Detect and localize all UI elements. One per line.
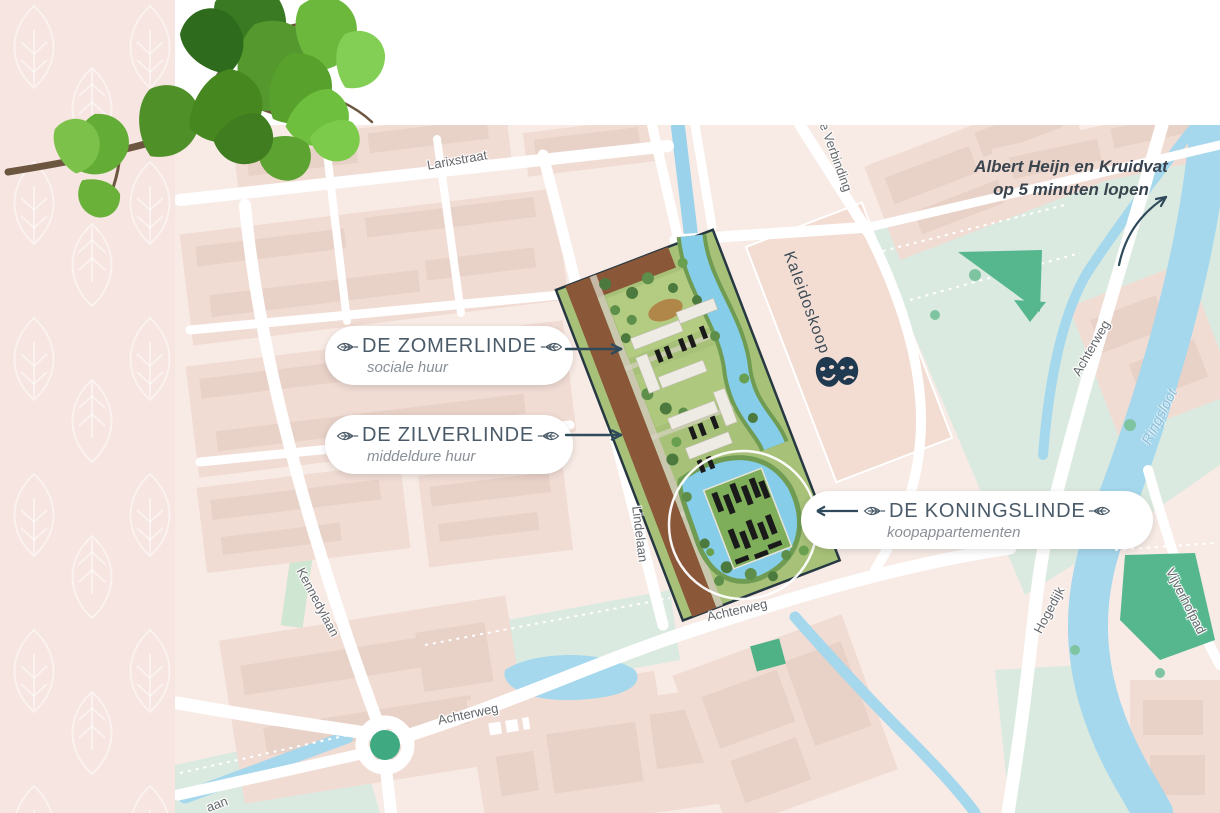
pill-subtitle: middeldure huur (367, 448, 571, 465)
map-graphics (175, 125, 1220, 813)
linden-leaf-icon (335, 336, 359, 358)
label-pill-koningslinde: DE KONINGSLINDE koopappartementen (801, 491, 1153, 549)
linden-leaf-icon (862, 500, 886, 522)
pill-subtitle: sociale huur (367, 359, 571, 376)
note-line-2: op 5 minuten lopen (921, 178, 1220, 201)
linden-leaf-icon (540, 336, 564, 358)
pill-title: DE ZILVERLINDE (362, 424, 534, 447)
label-pill-zilverlinde: DE ZILVERLINDE middeldure huur (325, 415, 573, 474)
linden-leaf-icon (335, 425, 359, 447)
leaf-outline-pattern (0, 0, 175, 813)
walking-distance-note: Albert Heijn en Kruidvat op 5 minuten lo… (921, 155, 1220, 201)
note-line-1: Albert Heijn en Kruidvat (921, 155, 1220, 178)
linden-leaf-icon (537, 425, 561, 447)
pill-title: DE ZOMERLINDE (362, 335, 537, 358)
page: Larixstraat e Verbinding Kennedylaan Lin… (0, 0, 1220, 813)
linden-leaf-icon (1088, 500, 1112, 522)
map-canvas: Larixstraat e Verbinding Kennedylaan Lin… (175, 125, 1220, 813)
label-pill-zomerlinde: DE ZOMERLINDE sociale huur (325, 326, 573, 385)
arrow-left-icon (813, 504, 859, 518)
pill-subtitle: koopappartementen (887, 524, 1143, 541)
pill-title: DE KONINGSLINDE (889, 500, 1085, 523)
decor-panel (0, 0, 175, 813)
